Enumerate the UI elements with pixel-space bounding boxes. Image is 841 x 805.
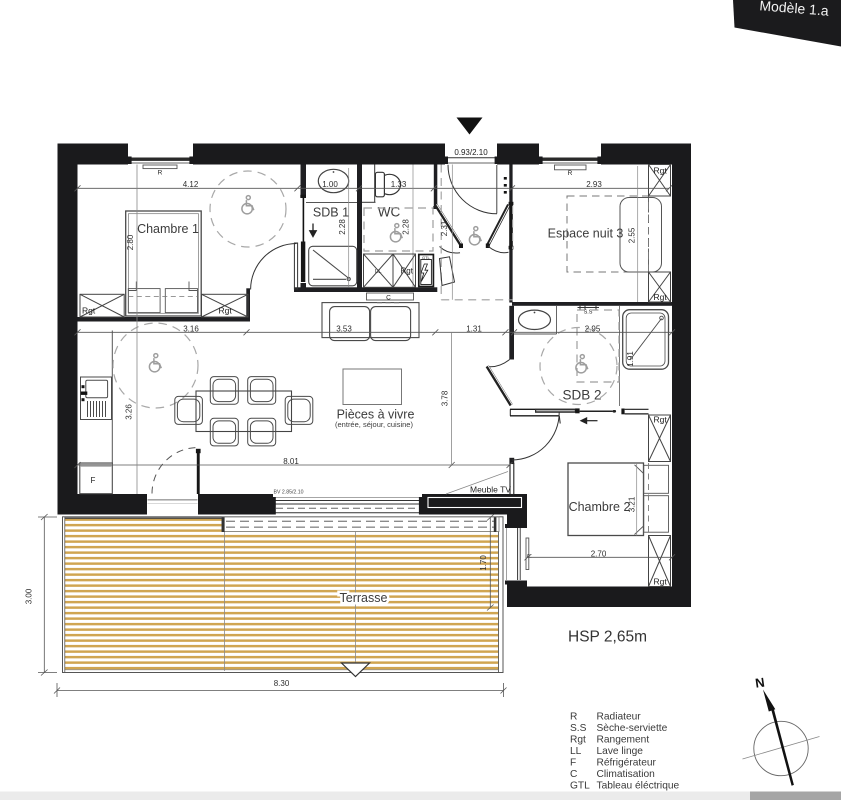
svg-text:R: R — [570, 712, 577, 723]
svg-text:1.00: 1.00 — [322, 180, 338, 189]
svg-text:Terrasse: Terrasse — [340, 591, 388, 605]
svg-text:3.26: 3.26 — [125, 404, 134, 420]
svg-text:2.93: 2.93 — [586, 180, 602, 189]
svg-text:3.78: 3.78 — [440, 390, 449, 406]
svg-text:0.93/2.10: 0.93/2.10 — [454, 148, 488, 157]
svg-text:2.55: 2.55 — [628, 227, 637, 243]
svg-text:Radiateur: Radiateur — [597, 712, 642, 723]
svg-text:Sèche-serviette: Sèche-serviette — [597, 723, 668, 734]
svg-text:2.80: 2.80 — [126, 234, 135, 250]
svg-text:WC: WC — [378, 205, 401, 220]
svg-text:Rgt: Rgt — [654, 166, 668, 176]
svg-text:8.01: 8.01 — [283, 457, 299, 466]
svg-text:GTL: GTL — [422, 255, 431, 260]
svg-text:Rgt: Rgt — [82, 306, 96, 316]
svg-text:R: R — [158, 170, 163, 177]
svg-text:Rgt: Rgt — [654, 292, 668, 302]
svg-text:Rgt: Rgt — [654, 577, 668, 587]
svg-text:1.33: 1.33 — [391, 180, 407, 189]
svg-text:Lave linge: Lave linge — [597, 746, 644, 757]
svg-text:2.28: 2.28 — [402, 219, 411, 235]
svg-text:Rgt: Rgt — [401, 267, 414, 276]
svg-text:Espace nuit 3: Espace nuit 3 — [548, 227, 624, 241]
svg-text:S.S: S.S — [570, 723, 587, 734]
svg-text:Meuble TV: Meuble TV — [470, 485, 511, 495]
svg-text:1.70: 1.70 — [479, 555, 488, 571]
svg-text:3.00: 3.00 — [25, 588, 34, 604]
svg-text:(entrée, séjour, cuisine): (entrée, séjour, cuisine) — [335, 420, 413, 429]
svg-text:GTL: GTL — [570, 781, 590, 792]
svg-text:C: C — [570, 769, 577, 780]
svg-text:Rgt: Rgt — [219, 306, 233, 316]
svg-text:8.30: 8.30 — [274, 679, 290, 688]
svg-text:Rgt: Rgt — [570, 735, 586, 746]
svg-text:R: R — [568, 170, 573, 177]
svg-text:3.21: 3.21 — [628, 496, 637, 512]
svg-text:F: F — [570, 758, 576, 769]
svg-text:LL: LL — [570, 746, 582, 757]
svg-text:3.16: 3.16 — [183, 324, 199, 333]
svg-text:3.53: 3.53 — [336, 324, 352, 333]
svg-text:Chambre 2: Chambre 2 — [569, 500, 631, 514]
svg-text:LL: LL — [375, 269, 382, 275]
svg-text:C: C — [386, 294, 391, 301]
svg-text:1.91: 1.91 — [626, 351, 635, 367]
svg-text:Chambre 1: Chambre 1 — [137, 222, 199, 236]
svg-text:1.31: 1.31 — [466, 324, 482, 333]
svg-text:2.31: 2.31 — [440, 220, 449, 236]
svg-text:HSP 2,65m: HSP 2,65m — [568, 629, 647, 646]
svg-text:Tableau éléctrique: Tableau éléctrique — [597, 781, 680, 792]
svg-text:Rangement: Rangement — [597, 735, 650, 746]
svg-text:Rgt: Rgt — [654, 415, 668, 425]
svg-text:BV 2.85/2.10: BV 2.85/2.10 — [274, 490, 304, 496]
svg-text:SDB 1: SDB 1 — [313, 206, 349, 220]
svg-text:2.95: 2.95 — [585, 324, 601, 333]
svg-text:F: F — [91, 476, 96, 485]
svg-text:2.70: 2.70 — [591, 549, 607, 558]
svg-text:Réfrigérateur: Réfrigérateur — [597, 758, 657, 769]
svg-text:SDB 2: SDB 2 — [562, 388, 601, 403]
svg-text:Climatisation: Climatisation — [597, 769, 655, 780]
svg-text:4.12: 4.12 — [183, 180, 199, 189]
svg-text:2.28: 2.28 — [338, 219, 347, 235]
